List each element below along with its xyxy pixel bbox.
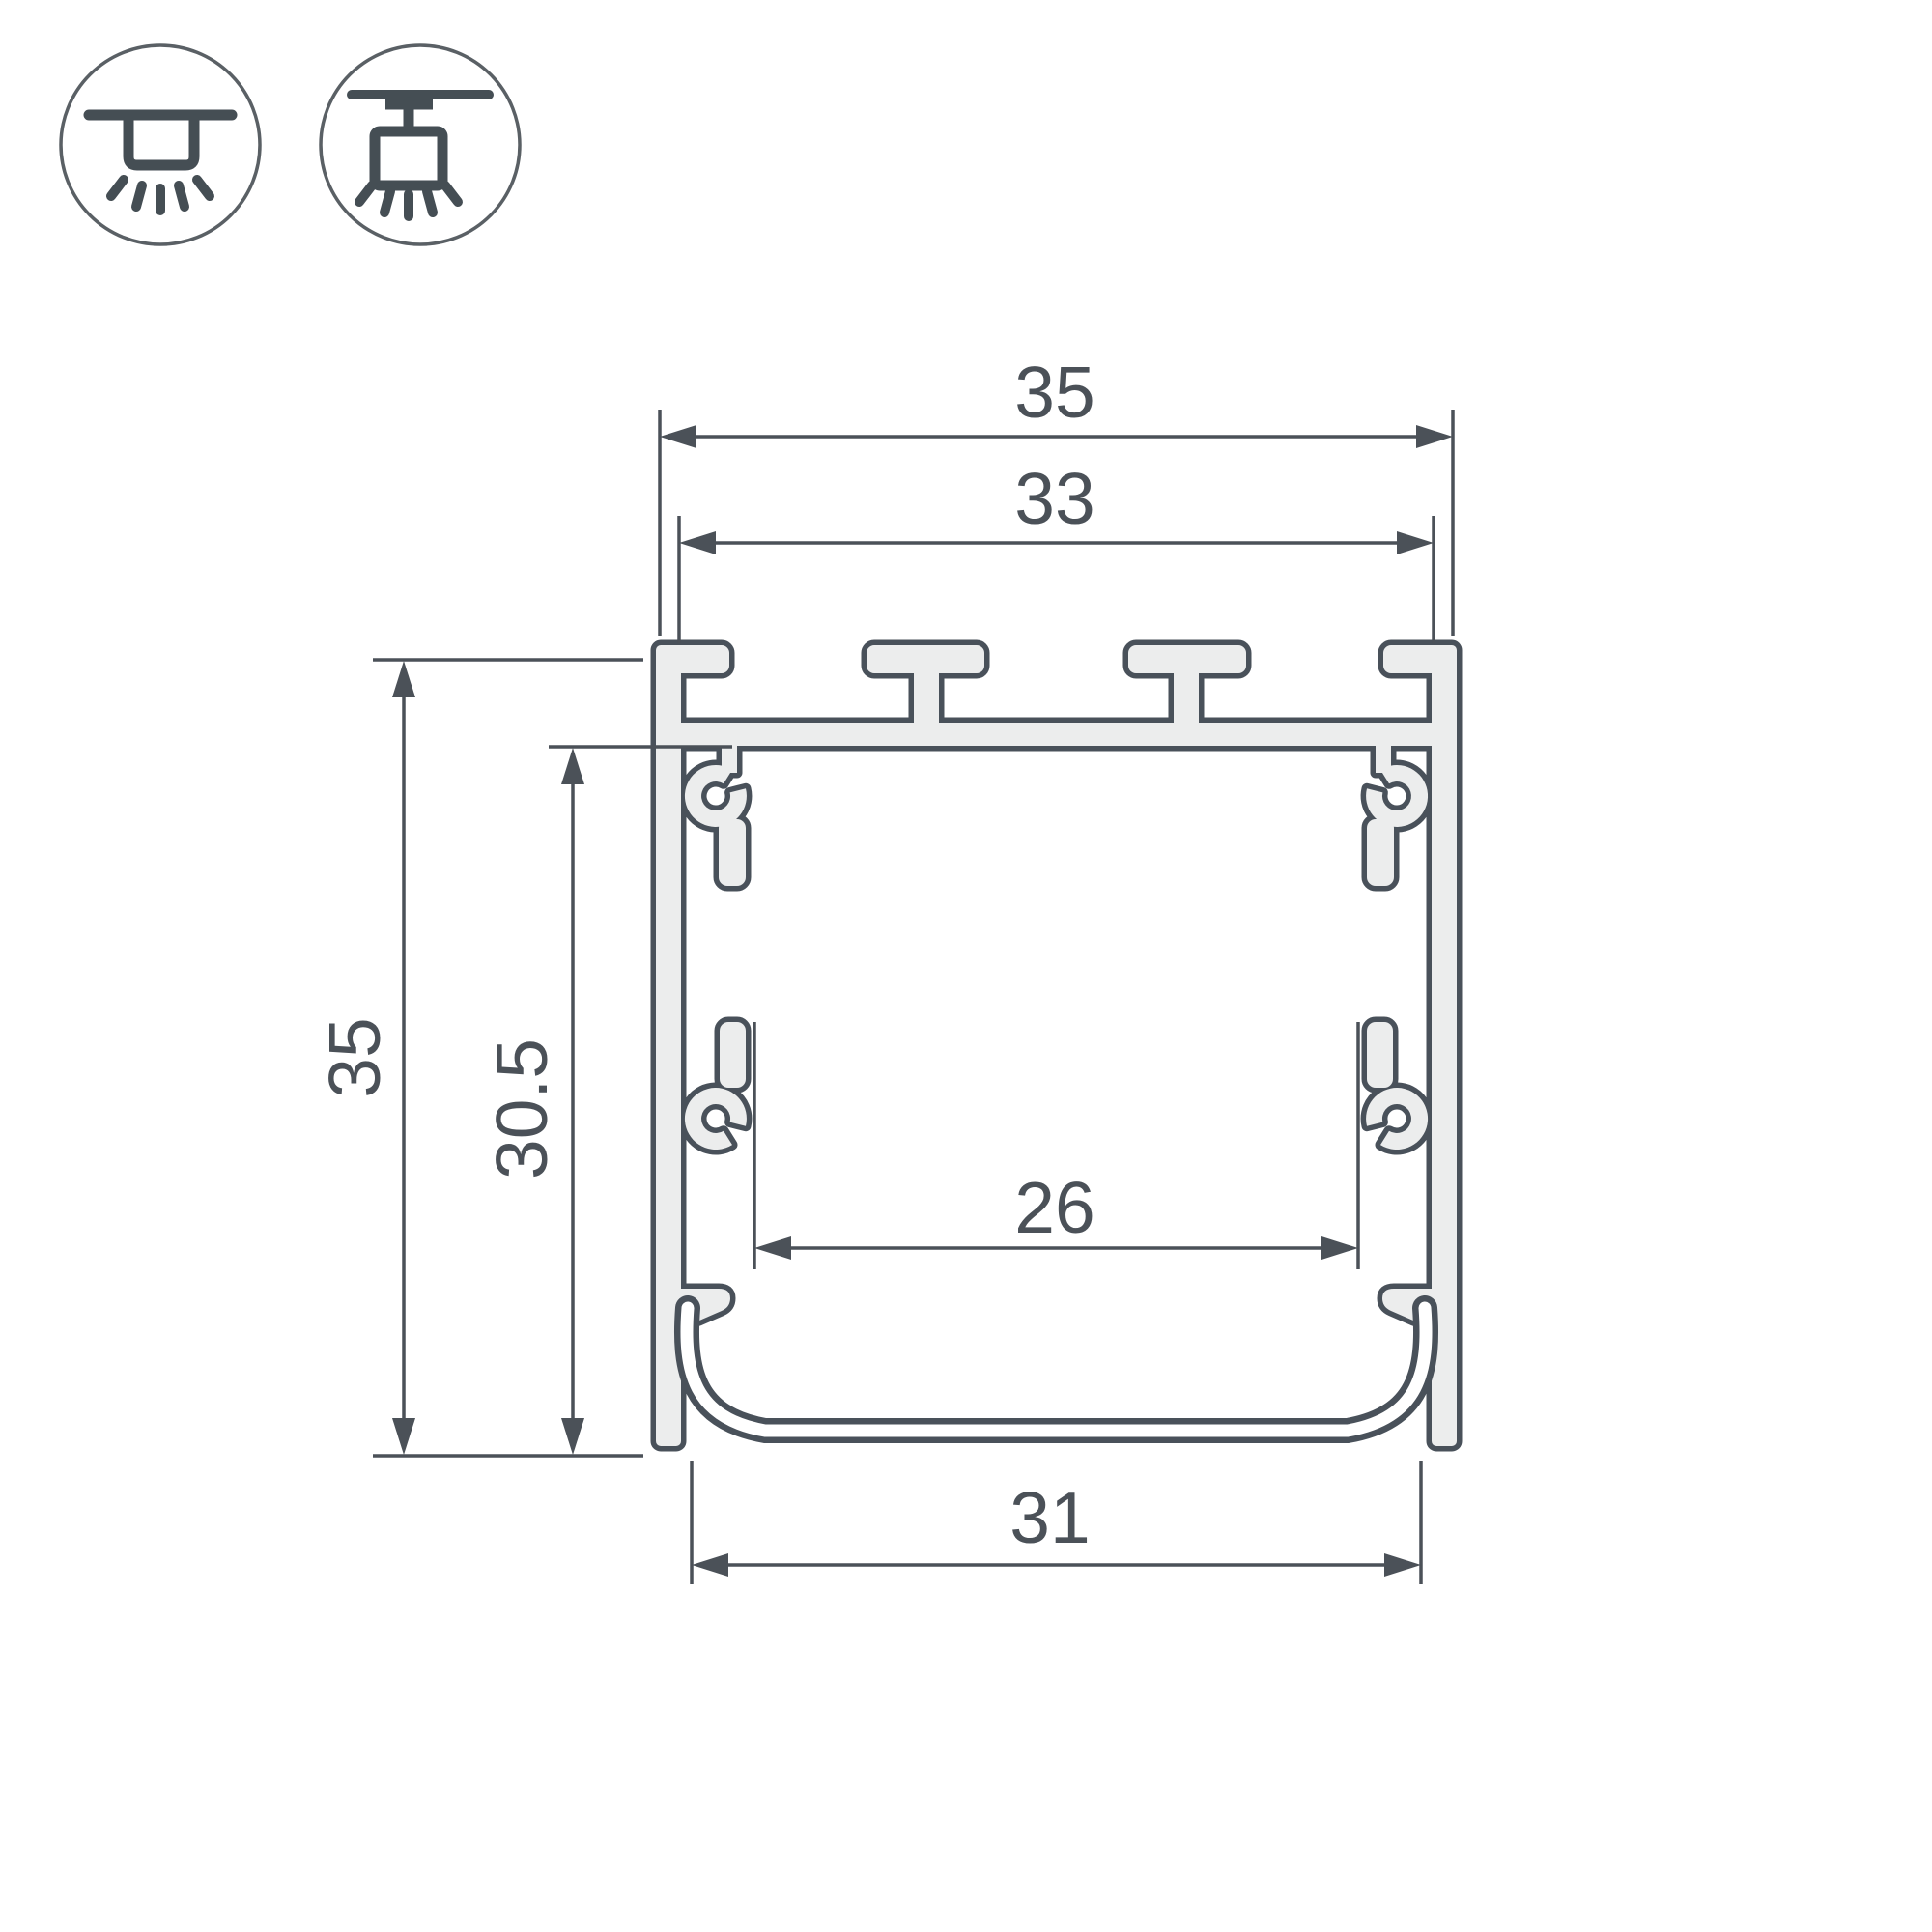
dim-overall-width: 35 <box>1014 352 1094 433</box>
dimension-arrows <box>392 425 1453 1577</box>
bottom-channel <box>687 1308 1426 1431</box>
profile-drawing: 35 33 35 30.5 26 31 <box>0 0 1932 1932</box>
drawing-canvas: 35 33 35 30.5 26 31 <box>0 0 1932 1932</box>
dim-overall-height: 35 <box>314 1017 395 1097</box>
lamp-body <box>128 120 194 165</box>
recessed-ceiling-light-icon <box>61 45 260 244</box>
dim-groove-span-width: 33 <box>1014 458 1094 539</box>
dim-inner-height: 30.5 <box>481 1038 562 1179</box>
pendant-ceiling-light-icon <box>321 45 520 244</box>
dim-inner-width: 26 <box>1014 1167 1094 1248</box>
lamp-body <box>375 131 442 185</box>
dim-bottom-width: 31 <box>1009 1477 1090 1558</box>
light-rays <box>359 185 458 216</box>
light-rays <box>111 180 210 211</box>
dimension-lines <box>373 410 1453 1584</box>
profile-cross-section <box>618 609 1507 1497</box>
icon-circle <box>321 45 520 244</box>
